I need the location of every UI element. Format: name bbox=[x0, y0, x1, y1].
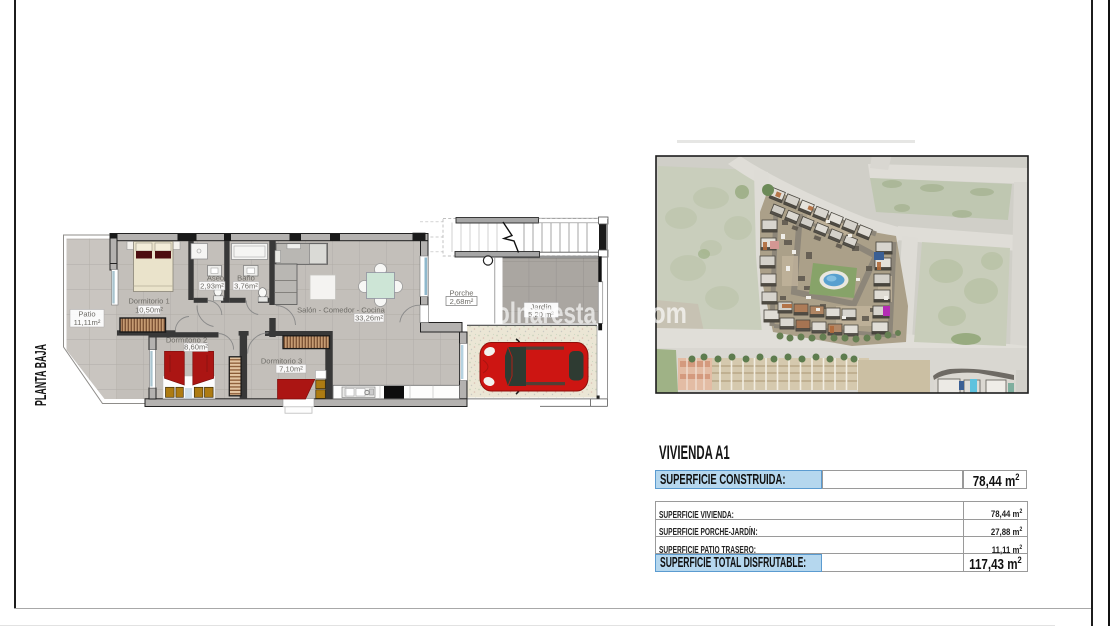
svg-text:10,50m²: 10,50m² bbox=[135, 305, 163, 314]
svg-text:3,76m²: 3,76m² bbox=[234, 281, 258, 290]
svg-text:2,68m²: 2,68m² bbox=[450, 297, 474, 306]
svg-text:7,10m²: 7,10m² bbox=[279, 364, 303, 373]
svg-text:Dormitorio 1: Dormitorio 1 bbox=[128, 297, 169, 306]
svg-text:11,11m²: 11,11m² bbox=[74, 318, 101, 327]
svg-text:2,93m²: 2,93m² bbox=[200, 281, 224, 290]
svg-text:33,26m²: 33,26m² bbox=[355, 313, 383, 322]
svg-text:8,60m²: 8,60m² bbox=[184, 343, 208, 352]
